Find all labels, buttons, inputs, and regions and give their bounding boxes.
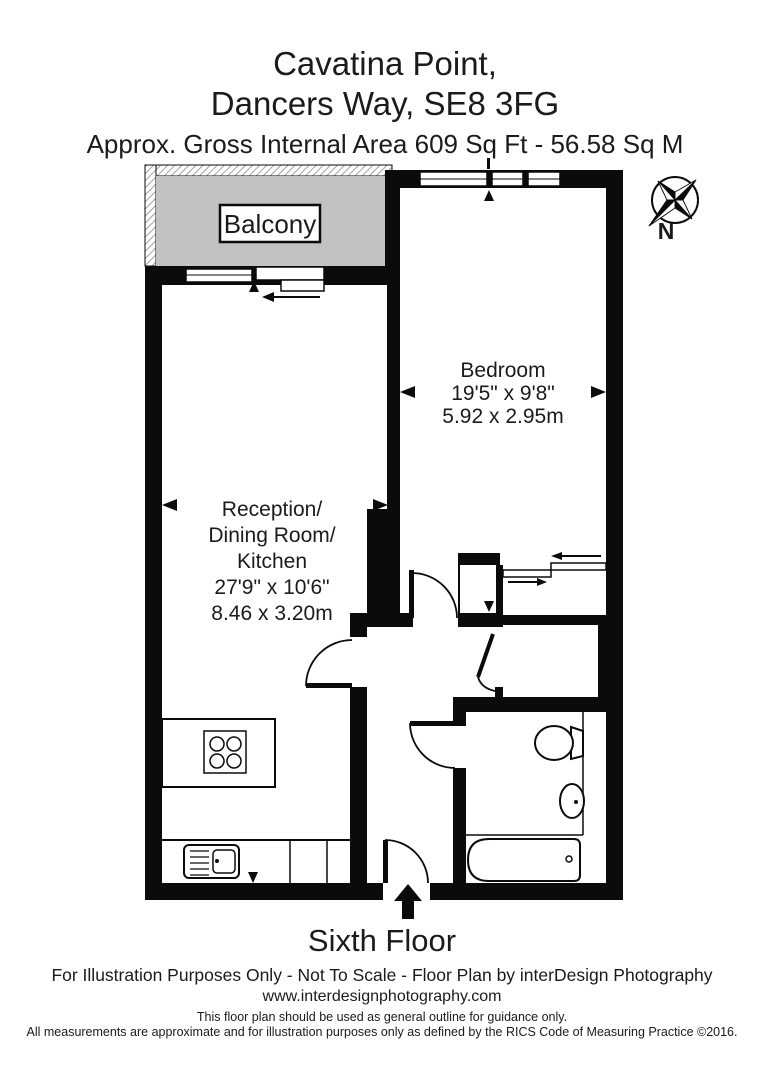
door-cupboard [478, 634, 495, 691]
dim-arrow-left [400, 386, 415, 398]
address-title: Dancers Way, SE8 3FG [211, 85, 559, 122]
slide-arrow-right [537, 578, 547, 586]
reception-label: Reception/ Dining Room/ Kitchen 27'9" x … [208, 498, 335, 625]
balcony-hatch-top [145, 165, 392, 176]
footer-disclaimer: For Illustration Purposes Only - Not To … [51, 965, 712, 985]
balcony: Balcony [145, 165, 392, 266]
slide-arrow-left [551, 552, 562, 560]
reception-name-3: Kitchen [237, 550, 307, 573]
dim-arrow-left [162, 499, 177, 511]
floorplan-page: Cavatina Point, Dancers Way, SE8 3FG App… [0, 0, 764, 1080]
footer-guidance-note: This floor plan should be used as genera… [197, 1010, 567, 1024]
reception-window [186, 269, 252, 282]
wardrobe-sliding-doors [503, 552, 606, 586]
measure-tick [487, 158, 490, 169]
footer-website: www.interdesignphotography.com [262, 988, 502, 1005]
slide-arrow-left [262, 292, 274, 302]
dim-arrow-right [591, 386, 606, 398]
toilet-icon [535, 726, 583, 760]
entrance-arrow-icon [394, 884, 422, 919]
door-bedroom [409, 570, 457, 618]
floorplan-svg: Cavatina Point, Dancers Way, SE8 3FG App… [0, 0, 764, 1080]
building-title: Cavatina Point, [273, 45, 497, 82]
door-reception [306, 640, 352, 688]
door-entrance [383, 840, 428, 883]
balcony-hatch-left [145, 165, 156, 266]
kitchen-sink-icon [184, 845, 239, 878]
reception-name-1: Reception/ [222, 498, 323, 521]
compass-north-label: N [658, 218, 675, 244]
measure-point [484, 601, 494, 612]
bedroom-size-imperial: 19'5" x 9'8" [451, 382, 555, 405]
floor-label: Sixth Floor [308, 923, 456, 958]
footer-rics-note: All measurements are approximate and for… [27, 1025, 738, 1039]
measure-point [248, 872, 258, 883]
kitchen-island [162, 719, 275, 787]
bedroom-label: Bedroom 19'5" x 9'8" 5.92 x 2.95m [442, 359, 563, 428]
reception-size-imperial: 27'9" x 10'6" [214, 576, 329, 599]
header: Cavatina Point, Dancers Way, SE8 3FG App… [87, 45, 684, 159]
bedroom-name: Bedroom [460, 359, 545, 382]
kitchen-counter [162, 840, 350, 883]
measure-point [484, 190, 494, 201]
compass: N [649, 177, 698, 244]
reception-name-2: Dining Room/ [208, 524, 335, 547]
reception-size-metric: 8.46 x 3.20m [211, 602, 332, 625]
door-bathroom [410, 721, 455, 768]
bathtub-icon [468, 839, 580, 881]
bathroom [466, 712, 584, 881]
footer: For Illustration Purposes Only - Not To … [27, 965, 738, 1039]
sink-icon [560, 784, 584, 818]
gross-area-line: Approx. Gross Internal Area 609 Sq Ft - … [87, 129, 684, 159]
bedroom-size-metric: 5.92 x 2.95m [442, 405, 563, 428]
balcony-label: Balcony [224, 209, 317, 239]
